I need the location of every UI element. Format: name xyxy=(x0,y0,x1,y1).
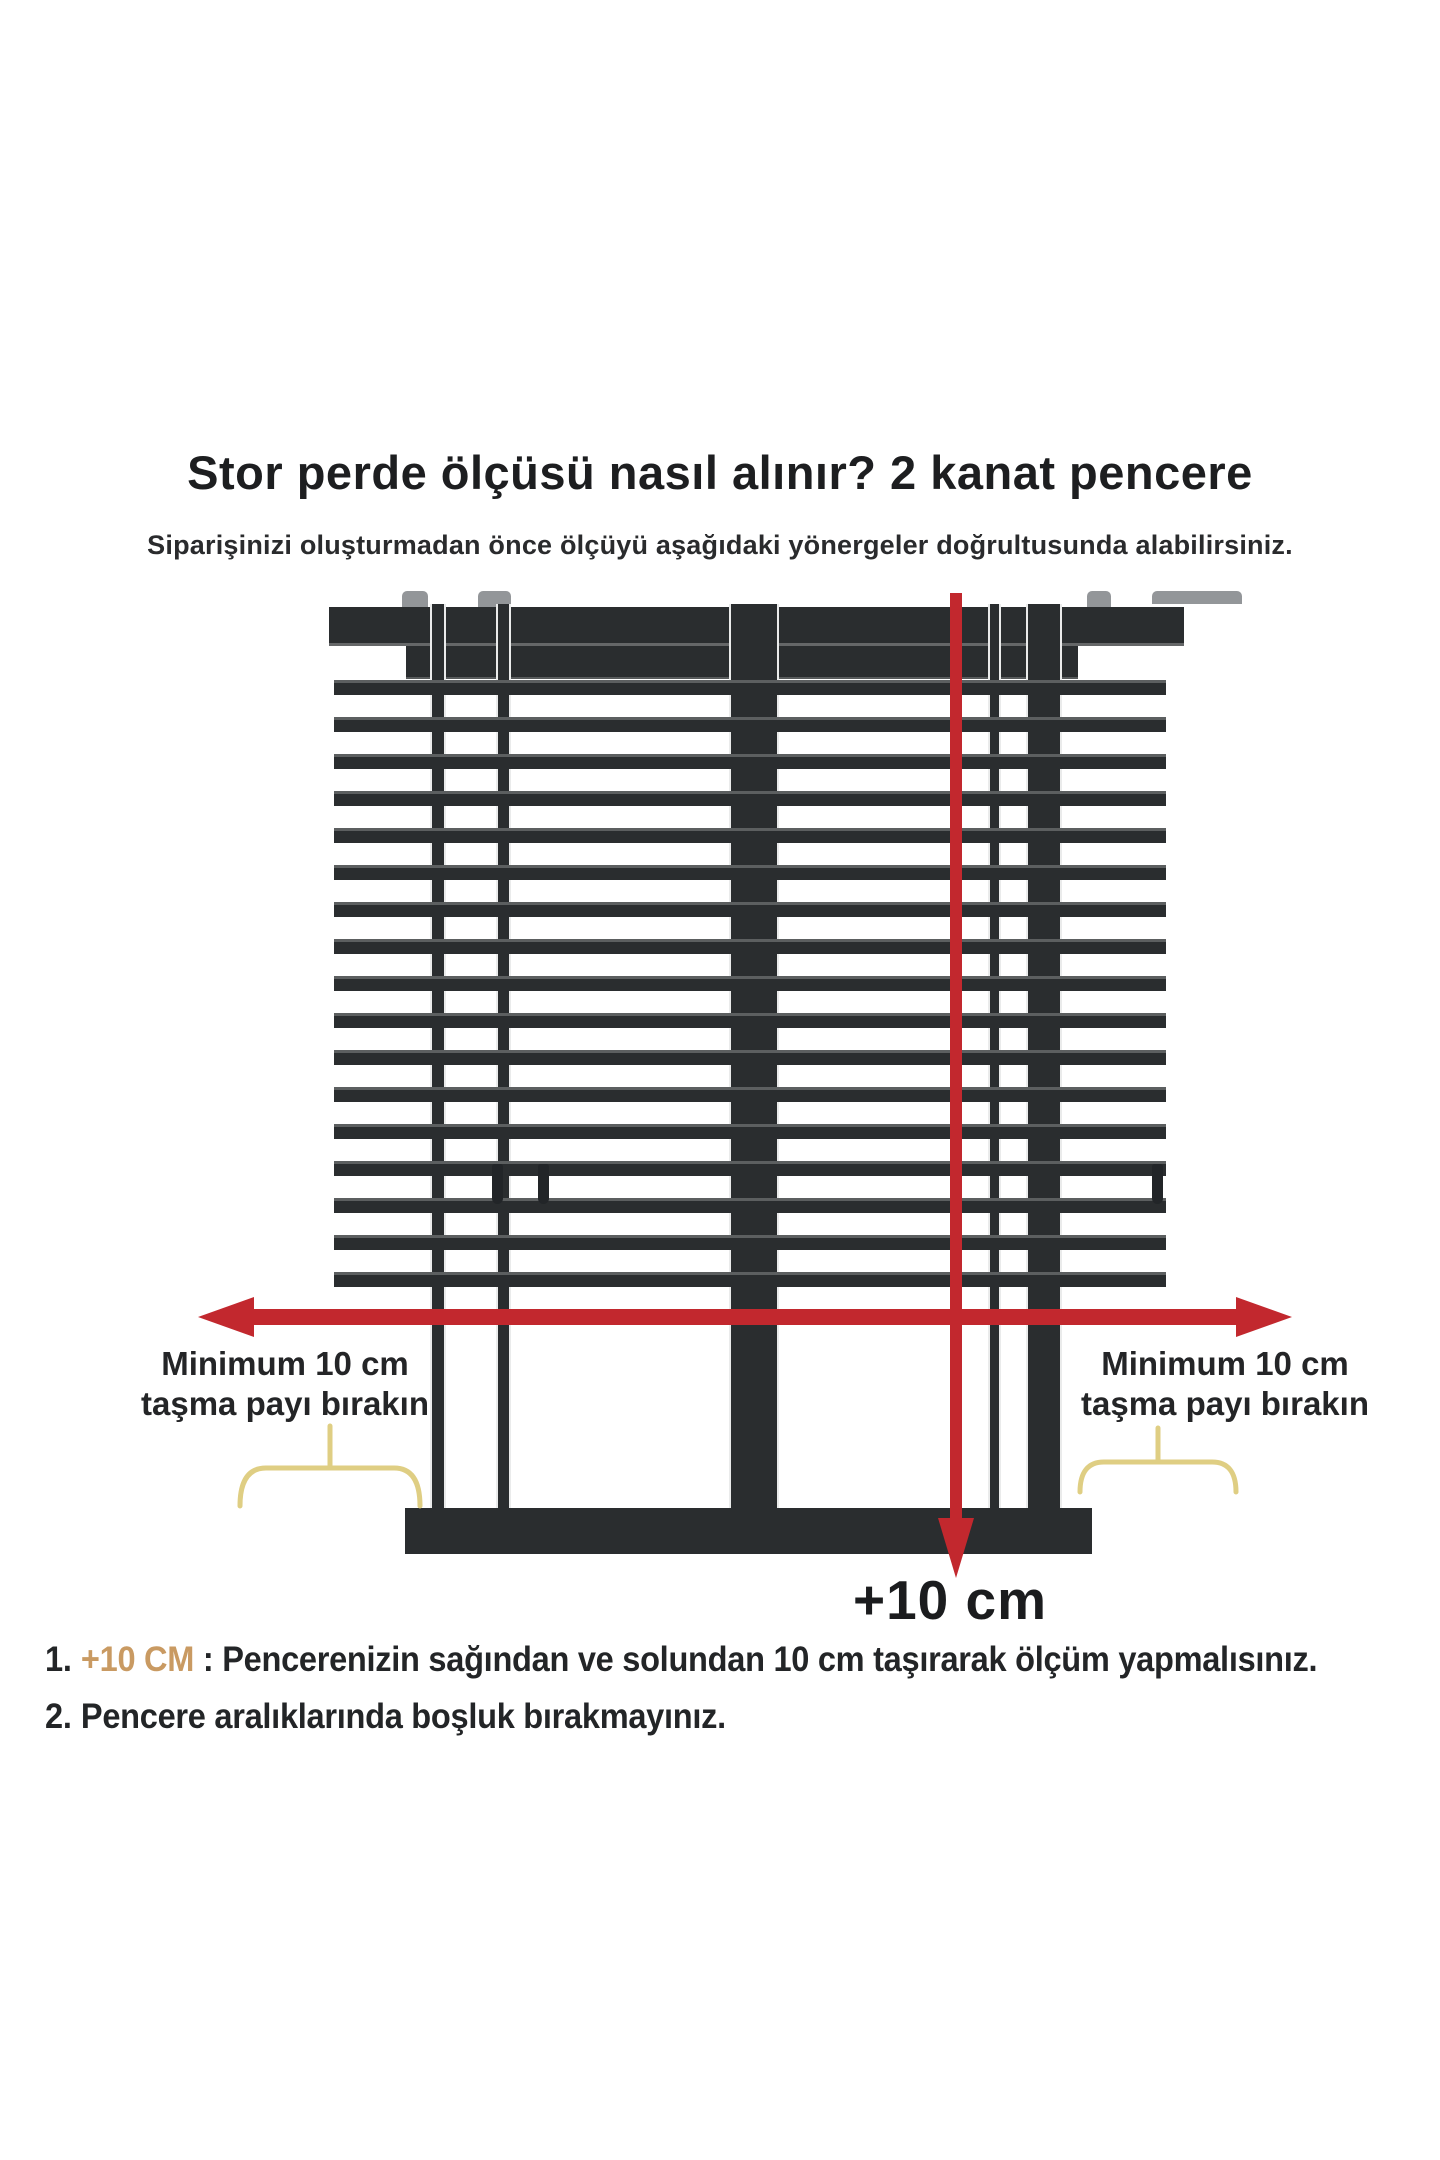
blind-cord-pull xyxy=(492,1164,503,1204)
page-subtitle: Siparişinizi oluşturmadan önce ölçüyü aş… xyxy=(0,530,1440,561)
window-sill xyxy=(405,1508,1092,1554)
blind-slat xyxy=(334,828,1166,843)
window-frame-top-stub xyxy=(1087,591,1111,607)
blind-slats xyxy=(334,680,1166,1287)
right-overhang-label-line2: taşma payı bırakın xyxy=(1020,1384,1430,1424)
left-overhang-label: Minimum 10 cm taşma payı bırakın xyxy=(80,1344,490,1424)
blind-cord-pull xyxy=(538,1164,549,1204)
window-frame-top-stub xyxy=(1152,591,1242,604)
left-overhang-label-line1: Minimum 10 cm xyxy=(80,1344,490,1384)
blind-slat xyxy=(334,791,1166,806)
right-overhang-bracket-icon xyxy=(1076,1424,1240,1496)
instruction-1-number: 1. xyxy=(45,1640,72,1679)
instruction-1-highlight: +10 CM xyxy=(81,1640,194,1679)
instruction-2-number: 2. xyxy=(45,1697,72,1736)
right-overhang-label: Minimum 10 cm taşma payı bırakın xyxy=(1020,1344,1430,1424)
blind-cord-pull xyxy=(1152,1164,1163,1204)
blind-slat xyxy=(334,1161,1166,1176)
blind-slat xyxy=(334,1124,1166,1139)
blind-slat xyxy=(334,939,1166,954)
measurement-guide-page: Stor perde ölçüsü nasıl alınır? 2 kanat … xyxy=(0,0,1440,2160)
blind-slat xyxy=(334,1198,1166,1213)
instruction-2-text: Pencere aralıklarında boşluk bırakmayını… xyxy=(81,1697,726,1736)
blind-slat xyxy=(334,680,1166,695)
plus-10cm-label: +10 cm xyxy=(770,1568,1130,1632)
blind-slat xyxy=(334,902,1166,917)
width-measure-arrowhead-left-icon xyxy=(198,1297,254,1337)
height-measure-line xyxy=(950,593,962,1540)
blind-slat xyxy=(334,717,1166,732)
blind-slat xyxy=(334,1013,1166,1028)
instruction-1: 1.+10 CM : Pencerenizin sağından ve solu… xyxy=(45,1640,1317,1680)
page-title: Stor perde ölçüsü nasıl alınır? 2 kanat … xyxy=(0,447,1440,499)
instruction-1-text: Pencerenizin sağından ve solundan 10 cm … xyxy=(222,1640,1317,1679)
blind-slat xyxy=(334,1272,1166,1287)
width-measure-arrowhead-right-icon xyxy=(1236,1297,1292,1337)
blind-slat xyxy=(334,754,1166,769)
blind-slat xyxy=(334,976,1166,991)
width-measure-line xyxy=(250,1309,1240,1325)
instruction-2: 2.Pencere aralıklarında boşluk bırakmayı… xyxy=(45,1697,726,1737)
left-overhang-bracket-icon xyxy=(236,1422,424,1510)
right-overhang-label-line1: Minimum 10 cm xyxy=(1020,1344,1430,1384)
blind-slat xyxy=(334,865,1166,880)
blind-slat xyxy=(334,1050,1166,1065)
blind-slat xyxy=(334,1235,1166,1250)
window-frame-top-stub xyxy=(402,591,428,607)
blind-slat xyxy=(334,1087,1166,1102)
left-overhang-label-line2: taşma payı bırakın xyxy=(80,1384,490,1424)
instruction-1-separator: : xyxy=(194,1640,222,1679)
